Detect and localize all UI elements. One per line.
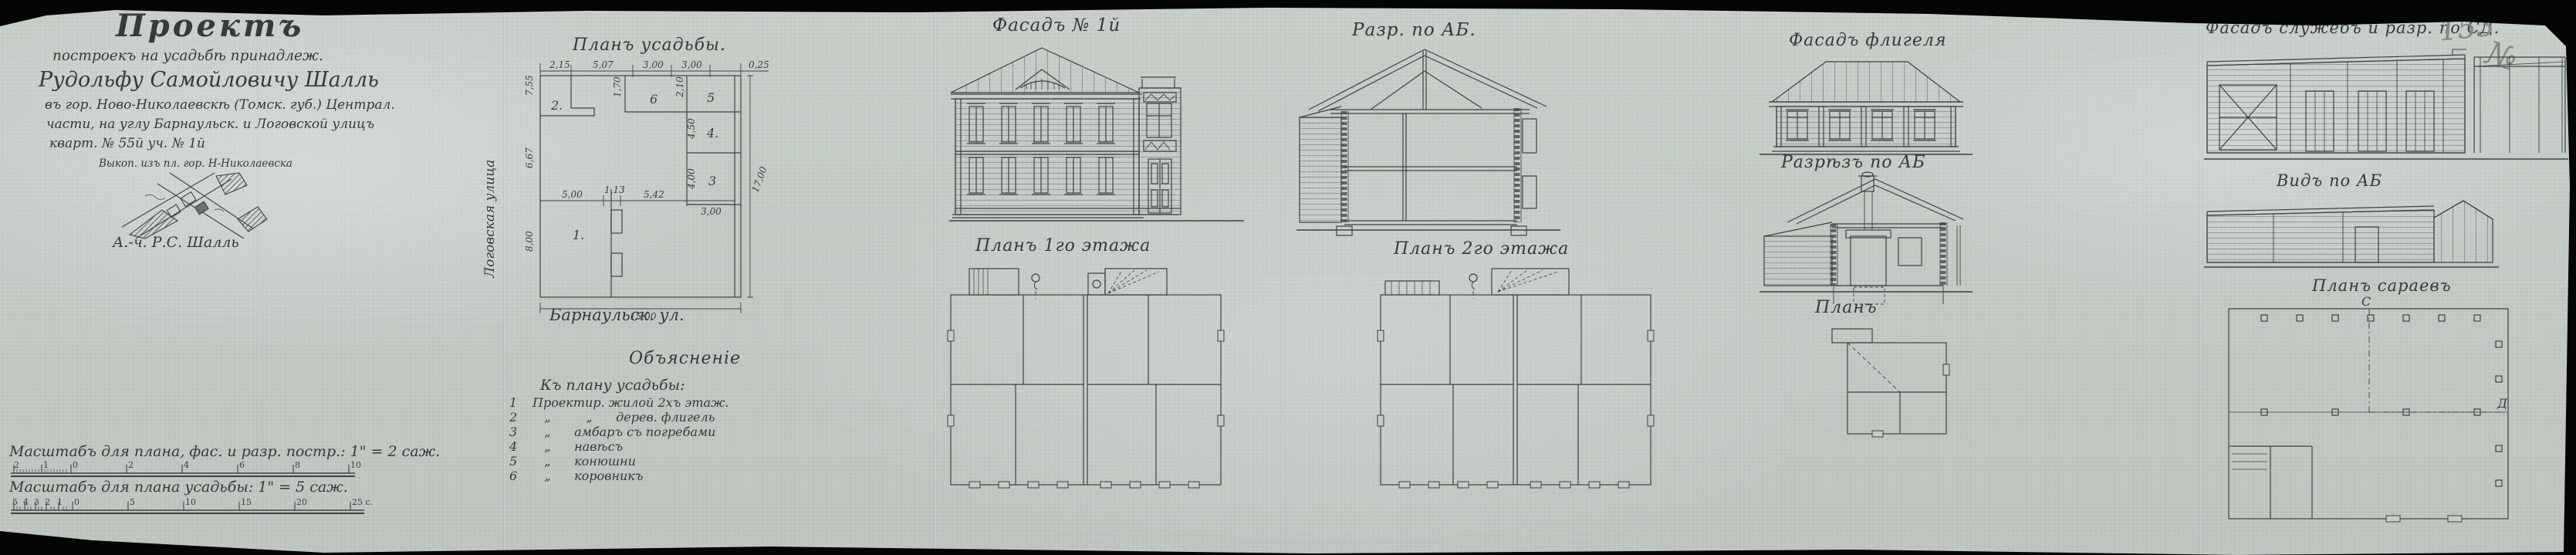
shed-inner-rooms	[2229, 446, 2312, 519]
ruler-tick-label: 10	[350, 460, 361, 470]
legend-item: 5 „ конюшни	[509, 454, 729, 469]
legend-item-text: Проектир. жилой 2хъ этаж.	[532, 395, 729, 410]
flegel-stove	[1846, 191, 1891, 286]
header-line-5: кварт. № 55й уч. № 1й	[49, 136, 205, 151]
site-sketch-drawing	[122, 173, 269, 239]
site-plan-drawing: 2,15 5,07 3,00 3,00 0,25 7,55 6,67 8,00 …	[503, 46, 787, 340]
dimension-label: 7,55	[524, 75, 535, 96]
plan-floor1-drawing	[946, 261, 1228, 499]
section-line-cd	[2369, 309, 2508, 412]
fold-crease	[2199, 0, 2202, 555]
dimension-label: 5,00	[562, 189, 583, 200]
street-label-bottom: Барнаульск. ул.	[549, 306, 685, 324]
scale1-ruler: 2 1 0 2 4 6 8 10	[9, 460, 358, 480]
ruler-tick-label: 1	[57, 497, 63, 507]
dimension-label: 1,13	[604, 184, 625, 195]
ruler-tick-label: 3	[34, 497, 39, 507]
legend-title: Объясненіе	[629, 349, 741, 368]
sheet-title: Проектъ	[116, 8, 301, 44]
fold-crease	[934, 0, 937, 555]
legend-item-text: „ амбаръ съ погребами	[532, 425, 715, 439]
sheds-facade-drawing	[2204, 43, 2570, 165]
legend-item-number: 1	[509, 395, 532, 410]
flegel-section-roof	[1787, 172, 1963, 228]
room-number: 6	[650, 92, 658, 107]
ruler-tick-label: 15	[241, 497, 252, 507]
scanned-sheet-stage: Проектъ построекъ на усадьбѣ принадлеж. …	[0, 0, 2576, 555]
legend-item-number: 4	[509, 439, 532, 454]
flegel-plan-drawing	[1826, 318, 1961, 442]
sheds-view-title: Видъ по АБ	[2277, 171, 2382, 190]
signature: А.-ч. Р.С. Шалль	[113, 234, 239, 251]
flegel-plan-title: Планъ	[1815, 298, 1877, 317]
ruler-tick-label: 10	[185, 497, 196, 507]
ruler-tick-label: 8	[295, 460, 300, 470]
dimension-label: 2,10	[674, 76, 685, 98]
ruler-tick-label: 1	[43, 460, 49, 470]
fold-crease	[1281, 0, 1284, 555]
flegel-section-title: Разрѣзъ по АБ	[1781, 153, 1925, 172]
owner-name: Рудольфу Самойловичу Шалль	[39, 68, 379, 92]
dimension-label: 6,67	[524, 147, 535, 168]
flegel-facade-drawing	[1760, 52, 1974, 161]
facade1-entrance-bay	[1139, 77, 1181, 215]
pencil-page-number: 153	[2437, 8, 2497, 47]
legend-item-text: „ навѣсъ	[532, 439, 623, 454]
dimension-label: 3,00	[643, 59, 664, 70]
legend-subtitle: Къ плану усадьбы:	[540, 377, 685, 394]
flegel-facade-title: Фасадъ флигеля	[1789, 31, 1947, 50]
legend-item: 2 „ „ дерев. флигель	[509, 410, 729, 425]
scale2-ruler: 5 4 3 2 1 0 5 10 15 20 25 c.	[9, 496, 370, 519]
fold-crease-horizontal	[0, 272, 2576, 274]
dimension-label: 1,70	[612, 76, 623, 97]
room-number: 2.	[550, 98, 563, 113]
legend-item: 3 „ амбаръ съ погребами	[509, 425, 729, 439]
sheds-plan-title: Планъ сараевъ	[2312, 276, 2452, 295]
chimney-vent-symbol	[1469, 274, 1477, 301]
dimension-label: 5,07	[593, 59, 614, 70]
plan-floor2-drawing	[1376, 261, 1658, 499]
ruler-tick-label: 5	[130, 497, 135, 507]
site-sketch-caption: Выкоп. изъ пл. гор. Н-Николаевска	[99, 157, 292, 170]
room-number: 5	[707, 90, 715, 105]
legend-item-text: „ „ дерев. флигель	[532, 410, 715, 425]
section-left-annex	[1300, 107, 1341, 222]
main-section-drawing	[1296, 37, 1563, 238]
header-line-1: построекъ на усадьбѣ принадлеж.	[52, 48, 323, 64]
header-line-4: части, на углу Барнаульск. и Логовской у…	[46, 117, 374, 132]
dimension-label: 17,00	[750, 165, 769, 194]
ruler-tick-label: 2	[128, 460, 134, 470]
linen-drawing-sheet: Проектъ построекъ на усадьбѣ принадлеж. …	[0, 0, 2576, 555]
ruler-tick-label: 25 c.	[352, 497, 373, 507]
ruler-tick-label: 0	[74, 497, 79, 507]
dimension-label: 3,00	[701, 206, 722, 217]
street-label-left: Логовская улица	[482, 108, 498, 278]
ruler-tick-label: 20	[296, 497, 307, 507]
ruler-tick-label: 4	[184, 460, 189, 470]
legend-item-text: „ конюшни	[532, 454, 636, 469]
legend-list: 1 Проектир. жилой 2хъ этаж. 2 „ „ дерев.…	[509, 395, 729, 483]
legend-item-number: 5	[509, 454, 532, 469]
plan-floor2-title: Планъ 2го этажа	[1394, 239, 1569, 259]
dimension-label: 4,00	[686, 168, 697, 190]
window-openings	[1378, 330, 1654, 488]
dimension-label: 5,42	[644, 189, 664, 200]
ruler-tick-label: 6	[239, 460, 245, 470]
ruler-tick-label: 2	[14, 460, 19, 470]
legend-item-number: 2	[509, 410, 532, 425]
dimension-label: 0,25	[749, 59, 769, 70]
dimension-label: 4,50	[686, 118, 697, 140]
scale2-label: Масштабъ для плана усадьбы: 1" = 5 саж.	[9, 479, 348, 496]
fold-crease	[1736, 0, 1739, 555]
flegel-roof	[1772, 62, 1960, 102]
sheds-view-drawing	[2204, 190, 2500, 273]
ruler-tick-label: 0	[73, 460, 78, 470]
shed-posts	[2261, 315, 2502, 486]
sheds-plan-drawing: С Д	[2216, 295, 2525, 536]
sheds-section-cd	[2474, 57, 2565, 153]
plan-floor1-title: Планъ 1го этажа	[975, 236, 1151, 256]
legend-item-number: 3	[509, 425, 532, 439]
dimension-label: 3,00	[681, 59, 702, 70]
section-mark-c: С	[2361, 294, 2371, 309]
ruler-tick-label: 4	[23, 497, 29, 507]
section-roof-truss	[1309, 49, 1547, 113]
room-number: 4.	[706, 126, 718, 140]
dimension-label: 8,00	[524, 231, 535, 252]
ruler-tick-label: 2	[45, 497, 50, 507]
header-line-3: въ гор. Ново-Николаевскѣ (Томск. губ.) Ц…	[45, 97, 395, 113]
facade1-title: Фасадъ № 1й	[992, 15, 1121, 36]
chimney-vent-symbol	[1032, 274, 1040, 301]
shed-gable-end	[2434, 201, 2493, 262]
section-floors	[1337, 113, 1526, 235]
legend-item: 4 „ навѣсъ	[509, 439, 729, 454]
legend-item-text: „ коровникъ	[532, 469, 644, 483]
scale1-label: Масштабъ для плана, фас. и разр. постр.:…	[9, 443, 440, 460]
dimension-label: 2,15	[549, 59, 570, 70]
legend-item: 1 Проектир. жилой 2хъ этаж.	[509, 395, 729, 410]
legend-item-number: 6	[509, 469, 532, 483]
legend-item: 6 „ коровникъ	[509, 469, 729, 483]
ruler-tick-label: 5	[12, 497, 18, 507]
section-log-walls	[1341, 108, 1536, 222]
facade1-drawing	[949, 39, 1246, 228]
room-number: 3	[708, 174, 716, 188]
flegel-section-drawing	[1760, 171, 1974, 309]
facade1-roof	[951, 48, 1142, 99]
room-number: 1.	[573, 228, 584, 242]
flegel-section-annex	[1764, 222, 1832, 286]
section-mark-d: Д	[2497, 396, 2508, 411]
window-openings	[948, 330, 1224, 488]
